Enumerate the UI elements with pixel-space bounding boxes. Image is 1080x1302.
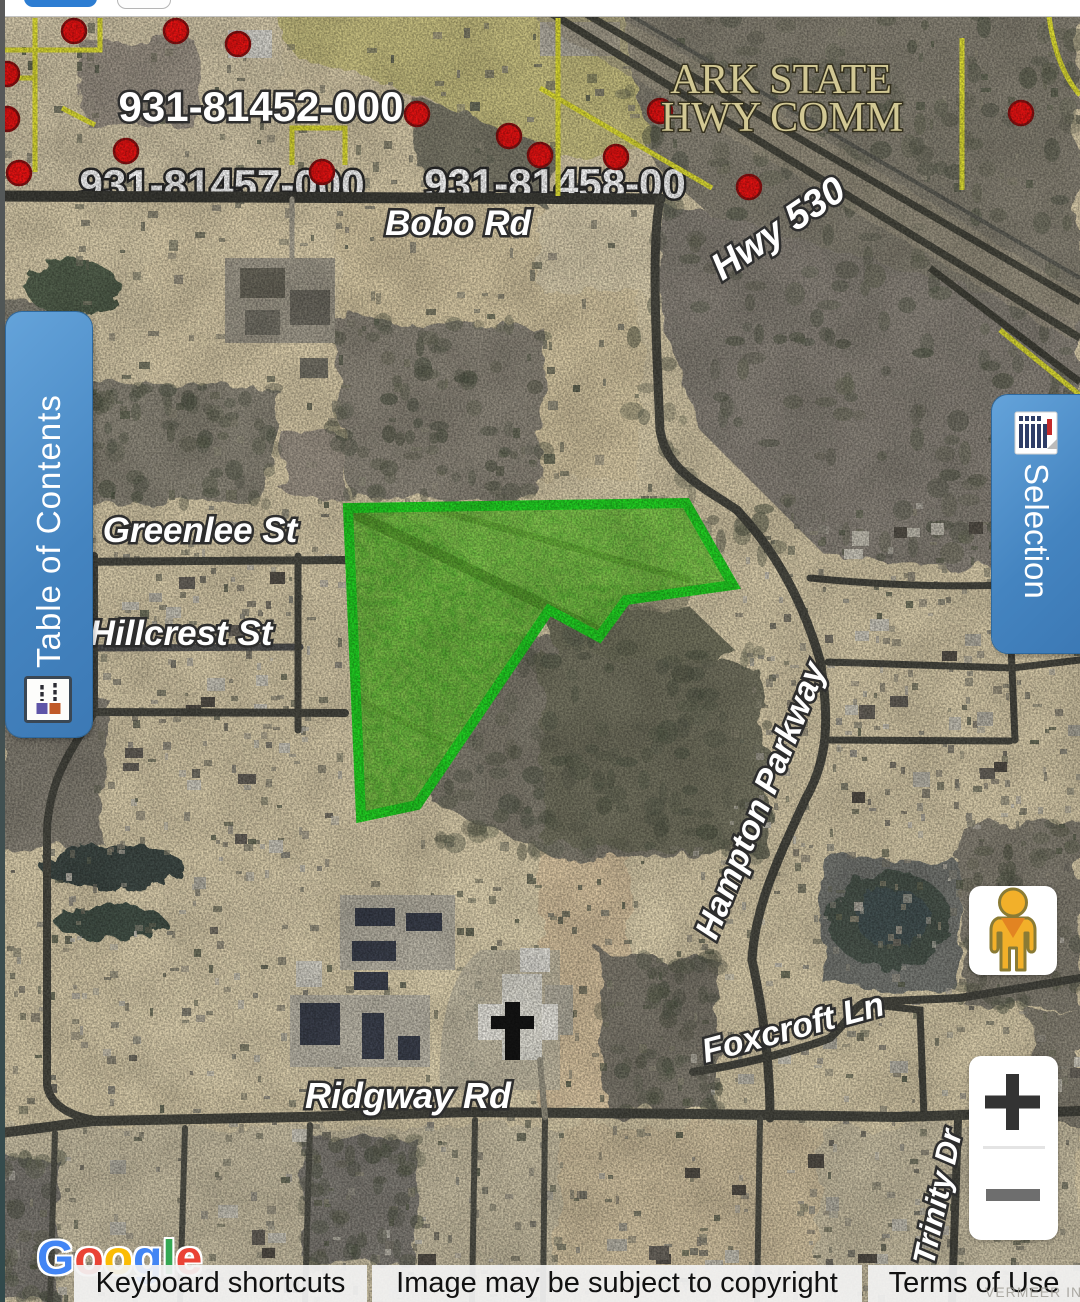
svg-text:Hillcrest St: Hillcrest St [90,614,274,653]
svg-text:Ridgway Rd: Ridgway Rd [305,1075,512,1116]
svg-text:Bobo Rd: Bobo Rd [385,204,531,243]
svg-text:931-81452-000: 931-81452-000 [119,83,404,130]
svg-text:HWY COMM: HWY COMM [661,95,903,141]
svg-text:Greenlee St: Greenlee St [103,511,299,550]
